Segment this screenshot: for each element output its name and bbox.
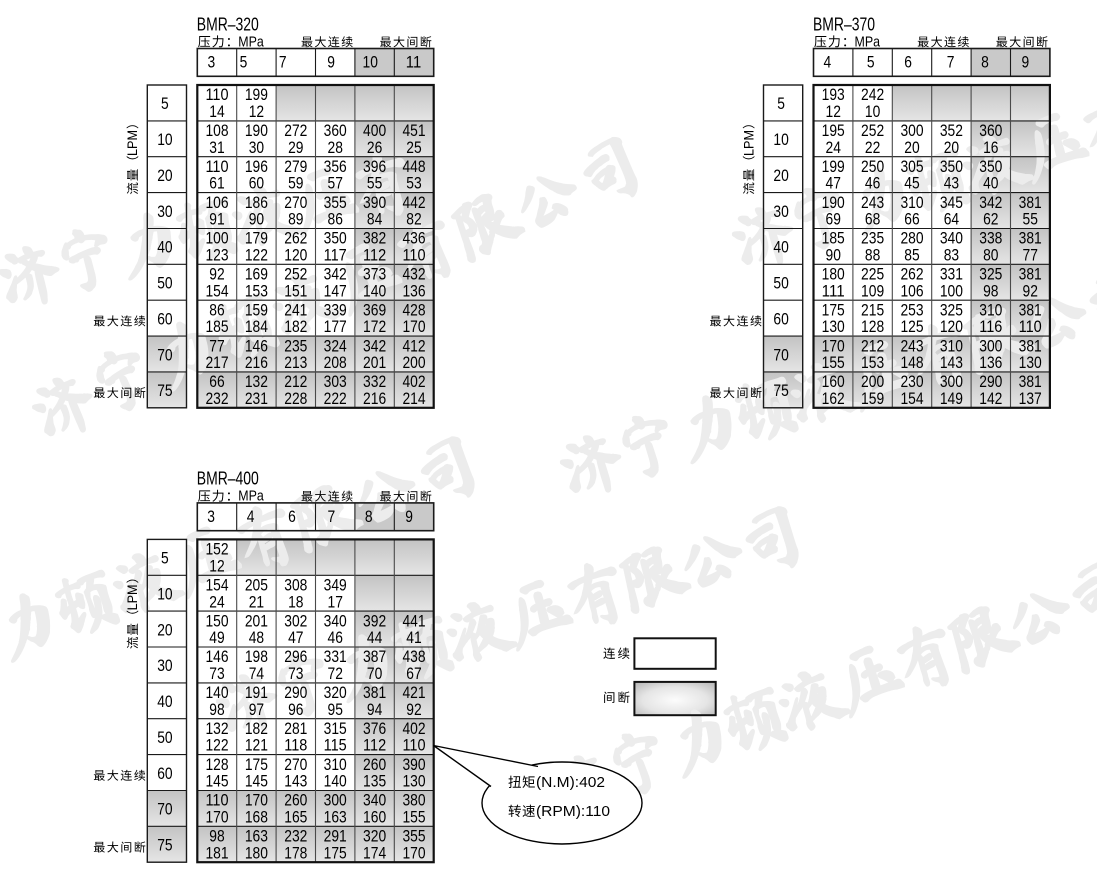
svg-text:150: 150	[205, 612, 228, 630]
svg-text:106: 106	[205, 194, 228, 212]
svg-text:14: 14	[209, 103, 224, 121]
svg-text:448: 448	[402, 158, 425, 176]
svg-text:96: 96	[288, 701, 303, 719]
svg-text:201: 201	[245, 612, 268, 630]
svg-text:381: 381	[1019, 230, 1042, 248]
svg-text:198: 198	[245, 648, 268, 666]
svg-text:143: 143	[940, 354, 963, 372]
svg-text:7: 7	[947, 54, 955, 72]
svg-text:160: 160	[363, 809, 386, 827]
svg-text:199: 199	[822, 158, 845, 176]
svg-text:110: 110	[402, 737, 425, 755]
svg-text:160: 160	[822, 373, 845, 391]
svg-text:146: 146	[205, 648, 228, 666]
svg-text:412: 412	[402, 337, 425, 355]
svg-text:253: 253	[900, 301, 923, 319]
svg-text:331: 331	[940, 266, 963, 284]
svg-text:49: 49	[209, 629, 224, 647]
svg-text:4: 4	[824, 54, 832, 72]
svg-text:200: 200	[402, 354, 425, 372]
svg-text:57: 57	[328, 175, 343, 193]
svg-text:6: 6	[904, 54, 912, 72]
svg-text:12: 12	[249, 103, 264, 121]
svg-text:112: 112	[363, 737, 386, 755]
svg-text:182: 182	[284, 318, 307, 336]
svg-text:20: 20	[773, 167, 788, 185]
svg-text:50: 50	[157, 275, 172, 293]
svg-text:9: 9	[405, 508, 413, 526]
svg-text:24: 24	[209, 593, 224, 611]
svg-text:350: 350	[324, 230, 347, 248]
svg-text:110: 110	[402, 247, 425, 265]
svg-text:163: 163	[245, 828, 268, 846]
svg-text:155: 155	[822, 354, 845, 372]
svg-text:98: 98	[209, 828, 224, 846]
svg-text:LPM: LPM	[741, 130, 756, 156]
svg-text:373: 373	[363, 266, 386, 284]
svg-text:70: 70	[157, 801, 172, 819]
svg-text:396: 396	[363, 158, 386, 176]
svg-text:62: 62	[983, 211, 998, 229]
svg-text:88: 88	[865, 247, 880, 265]
svg-text:186: 186	[245, 194, 268, 212]
svg-text:153: 153	[861, 354, 884, 372]
svg-text:252: 252	[861, 122, 884, 140]
svg-text:40: 40	[773, 239, 788, 257]
svg-text:118: 118	[284, 737, 307, 755]
svg-text:225: 225	[861, 266, 884, 284]
svg-text:3: 3	[207, 508, 215, 526]
svg-text:115: 115	[324, 737, 347, 755]
svg-text:159: 159	[245, 301, 268, 319]
svg-text:185: 185	[822, 230, 845, 248]
svg-text:50: 50	[157, 729, 172, 747]
svg-text:182: 182	[245, 720, 268, 738]
svg-text:149: 149	[940, 390, 963, 408]
svg-text:201: 201	[363, 354, 386, 372]
svg-text:308: 308	[284, 577, 307, 595]
svg-text:60: 60	[157, 765, 172, 783]
svg-text:310: 310	[979, 301, 1002, 319]
svg-text:47: 47	[288, 629, 303, 647]
svg-text:243: 243	[861, 194, 884, 212]
svg-text:12: 12	[826, 103, 841, 121]
svg-text:310: 310	[324, 756, 347, 774]
svg-text:170: 170	[205, 809, 228, 827]
svg-text:381: 381	[363, 684, 386, 702]
svg-text:342: 342	[979, 194, 1002, 212]
svg-text:128: 128	[861, 318, 884, 336]
svg-text:20: 20	[157, 167, 172, 185]
svg-text:5: 5	[161, 550, 169, 568]
svg-text:46: 46	[865, 175, 880, 193]
svg-text:320: 320	[324, 684, 347, 702]
svg-text:80: 80	[983, 247, 998, 265]
svg-text:110: 110	[1019, 318, 1042, 336]
svg-text:94: 94	[367, 701, 382, 719]
svg-text:400: 400	[363, 122, 386, 140]
svg-text:73: 73	[209, 665, 224, 683]
svg-text:53: 53	[406, 175, 421, 193]
svg-text:5: 5	[240, 54, 248, 72]
svg-text:205: 205	[245, 577, 268, 595]
svg-text:179: 179	[245, 230, 268, 248]
svg-text:185: 185	[205, 318, 228, 336]
svg-text:LPM: LPM	[125, 584, 140, 610]
svg-text:48: 48	[249, 629, 264, 647]
svg-text:92: 92	[209, 266, 224, 284]
svg-text:232: 232	[284, 828, 307, 846]
svg-text:428: 428	[402, 301, 425, 319]
svg-text:340: 340	[363, 792, 386, 810]
svg-text:339: 339	[324, 301, 347, 319]
svg-text:110: 110	[205, 792, 228, 810]
svg-text:345: 345	[940, 194, 963, 212]
svg-text:77: 77	[209, 337, 224, 355]
svg-text:44: 44	[367, 629, 382, 647]
svg-text:241: 241	[284, 301, 307, 319]
svg-text:70: 70	[157, 346, 172, 364]
svg-text:300: 300	[900, 122, 923, 140]
svg-text:110: 110	[205, 158, 228, 176]
svg-text:270: 270	[284, 194, 307, 212]
svg-text:382: 382	[363, 230, 386, 248]
svg-text:75: 75	[773, 382, 788, 400]
svg-text:7: 7	[328, 508, 336, 526]
svg-text:174: 174	[363, 844, 386, 862]
svg-text:24: 24	[826, 139, 841, 157]
svg-text:315: 315	[324, 720, 347, 738]
svg-text:55: 55	[1023, 211, 1038, 229]
svg-text:109: 109	[861, 282, 884, 300]
svg-text:252: 252	[284, 266, 307, 284]
svg-text:235: 235	[284, 337, 307, 355]
svg-text:302: 302	[284, 612, 307, 630]
svg-text:178: 178	[284, 844, 307, 862]
svg-text:290: 290	[979, 373, 1002, 391]
svg-text:100: 100	[205, 230, 228, 248]
svg-text:279: 279	[284, 158, 307, 176]
svg-text:140: 140	[205, 684, 228, 702]
svg-text:305: 305	[900, 158, 923, 176]
svg-text:85: 85	[904, 247, 919, 265]
svg-text:9: 9	[1022, 54, 1030, 72]
svg-text:10: 10	[773, 131, 788, 149]
svg-text:154: 154	[900, 390, 923, 408]
svg-text:82: 82	[406, 211, 421, 229]
svg-text:20: 20	[944, 139, 959, 157]
svg-text:162: 162	[822, 390, 845, 408]
svg-text:148: 148	[900, 354, 923, 372]
svg-text:130: 130	[822, 318, 845, 336]
svg-text:175: 175	[822, 301, 845, 319]
svg-text:216: 216	[363, 390, 386, 408]
svg-text:136: 136	[402, 282, 425, 300]
svg-text:7: 7	[279, 54, 287, 72]
svg-text:20: 20	[157, 621, 172, 639]
svg-text:10: 10	[865, 103, 880, 121]
svg-text:9: 9	[327, 54, 335, 72]
svg-text:442: 442	[402, 194, 425, 212]
svg-text:212: 212	[861, 337, 884, 355]
svg-text:165: 165	[284, 809, 307, 827]
svg-text:117: 117	[324, 247, 347, 265]
svg-text:66: 66	[904, 211, 919, 229]
svg-text:92: 92	[406, 701, 421, 719]
svg-text:BMR–370: BMR–370	[813, 13, 875, 34]
svg-text:43: 43	[944, 175, 959, 193]
svg-text:132: 132	[205, 720, 228, 738]
svg-text:310: 310	[940, 337, 963, 355]
svg-text:142: 142	[979, 390, 1002, 408]
svg-text:320: 320	[363, 828, 386, 846]
svg-text:17: 17	[328, 593, 343, 611]
svg-text:213: 213	[284, 354, 307, 372]
svg-text:381: 381	[1019, 194, 1042, 212]
svg-text:40: 40	[157, 693, 172, 711]
svg-text:272: 272	[284, 122, 307, 140]
svg-text:381: 381	[1019, 301, 1042, 319]
svg-text:25: 25	[406, 139, 421, 157]
svg-text:145: 145	[245, 773, 268, 791]
svg-text:147: 147	[324, 282, 347, 300]
svg-text:112: 112	[363, 247, 386, 265]
svg-text:262: 262	[900, 266, 923, 284]
svg-text:381: 381	[1019, 373, 1042, 391]
svg-text:190: 190	[245, 122, 268, 140]
svg-text:300: 300	[324, 792, 347, 810]
svg-text:50: 50	[773, 275, 788, 293]
svg-text:380: 380	[402, 792, 425, 810]
svg-text:18: 18	[288, 593, 303, 611]
svg-text:159: 159	[861, 390, 884, 408]
svg-text:122: 122	[205, 737, 228, 755]
svg-text:190: 190	[822, 194, 845, 212]
svg-text:262: 262	[284, 230, 307, 248]
svg-text:75: 75	[157, 837, 172, 855]
svg-text:215: 215	[861, 301, 884, 319]
svg-text:136: 136	[979, 354, 1002, 372]
svg-text:11: 11	[406, 54, 421, 72]
svg-text:242: 242	[861, 86, 884, 104]
svg-text:59: 59	[288, 175, 303, 193]
svg-text:20: 20	[904, 139, 919, 157]
svg-text:90: 90	[249, 211, 264, 229]
svg-text:70: 70	[367, 665, 382, 683]
svg-text:390: 390	[402, 756, 425, 774]
svg-text:(RPM):110: (RPM):110	[536, 804, 610, 820]
svg-text:260: 260	[363, 756, 386, 774]
svg-text:193: 193	[822, 86, 845, 104]
svg-text:432: 432	[402, 266, 425, 284]
svg-text:10: 10	[157, 586, 172, 604]
svg-text:145: 145	[205, 773, 228, 791]
svg-text:231: 231	[245, 390, 268, 408]
svg-text:355: 355	[402, 828, 425, 846]
svg-text:291: 291	[324, 828, 347, 846]
svg-text:340: 340	[324, 612, 347, 630]
svg-text:130: 130	[402, 773, 425, 791]
svg-text:BMR–400: BMR–400	[197, 468, 259, 489]
svg-text:280: 280	[900, 230, 923, 248]
svg-text:30: 30	[157, 657, 172, 675]
svg-text:95: 95	[328, 701, 343, 719]
svg-text:325: 325	[940, 301, 963, 319]
svg-text:151: 151	[284, 282, 307, 300]
svg-text:75: 75	[157, 382, 172, 400]
svg-text:352: 352	[940, 122, 963, 140]
svg-text:45: 45	[904, 175, 919, 193]
svg-text:16: 16	[983, 139, 998, 157]
svg-text:30: 30	[773, 203, 788, 221]
svg-text:8: 8	[365, 508, 373, 526]
svg-text:168: 168	[245, 809, 268, 827]
svg-text:89: 89	[288, 211, 303, 229]
svg-text:60: 60	[249, 175, 264, 193]
svg-text:200: 200	[861, 373, 884, 391]
svg-text:8: 8	[981, 54, 989, 72]
svg-text:12: 12	[209, 557, 224, 575]
svg-text:66: 66	[209, 373, 224, 391]
svg-text:184: 184	[245, 318, 268, 336]
svg-text:342: 342	[363, 337, 386, 355]
svg-text:170: 170	[402, 318, 425, 336]
svg-text:60: 60	[773, 310, 788, 328]
svg-text:177: 177	[324, 318, 347, 336]
svg-text:31: 31	[209, 139, 224, 157]
svg-text:72: 72	[328, 665, 343, 683]
svg-text:180: 180	[245, 844, 268, 862]
svg-text:232: 232	[205, 390, 228, 408]
svg-text:40: 40	[983, 175, 998, 193]
svg-text:441: 441	[402, 612, 425, 630]
svg-text:128: 128	[205, 756, 228, 774]
svg-text:350: 350	[940, 158, 963, 176]
svg-text:67: 67	[406, 665, 421, 683]
svg-text:120: 120	[940, 318, 963, 336]
svg-text:281: 281	[284, 720, 307, 738]
svg-text:324: 324	[324, 337, 347, 355]
svg-text:28: 28	[328, 139, 343, 157]
svg-text:106: 106	[900, 282, 923, 300]
svg-text:402: 402	[402, 373, 425, 391]
svg-text:100: 100	[940, 282, 963, 300]
svg-text:46: 46	[328, 629, 343, 647]
svg-text:180: 180	[822, 266, 845, 284]
svg-text:40: 40	[157, 239, 172, 257]
svg-text:132: 132	[245, 373, 268, 391]
svg-text:235: 235	[861, 230, 884, 248]
svg-text:140: 140	[363, 282, 386, 300]
svg-text:123: 123	[205, 247, 228, 265]
svg-text:111: 111	[822, 282, 845, 300]
svg-text:196: 196	[245, 158, 268, 176]
svg-text:270: 270	[284, 756, 307, 774]
svg-text:26: 26	[367, 139, 382, 157]
svg-text:155: 155	[402, 809, 425, 827]
svg-text:LPM: LPM	[125, 130, 140, 156]
svg-text:195: 195	[822, 122, 845, 140]
svg-text:381: 381	[1019, 266, 1042, 284]
svg-text:175: 175	[245, 756, 268, 774]
svg-text:BMR–320: BMR–320	[197, 13, 259, 34]
svg-text:5: 5	[777, 95, 785, 113]
svg-text:30: 30	[249, 139, 264, 157]
svg-text:90: 90	[826, 247, 841, 265]
svg-text:60: 60	[157, 310, 172, 328]
svg-text:97: 97	[249, 701, 264, 719]
svg-text:3: 3	[208, 54, 216, 72]
svg-text:163: 163	[324, 809, 347, 827]
svg-text:303: 303	[324, 373, 347, 391]
svg-text:86: 86	[209, 301, 224, 319]
svg-text:(N.M):402: (N.M):402	[536, 775, 605, 791]
svg-text:5: 5	[161, 95, 169, 113]
svg-text:30: 30	[157, 203, 172, 221]
svg-text:22: 22	[865, 139, 880, 157]
svg-text:369: 369	[363, 301, 386, 319]
svg-text:212: 212	[284, 373, 307, 391]
svg-text:169: 169	[245, 266, 268, 284]
svg-text:360: 360	[979, 122, 1002, 140]
svg-text:340: 340	[940, 230, 963, 248]
svg-text:199: 199	[245, 86, 268, 104]
svg-text:181: 181	[205, 844, 228, 862]
svg-text:130: 130	[1019, 354, 1042, 372]
svg-text:154: 154	[205, 282, 228, 300]
svg-text:222: 222	[324, 390, 347, 408]
svg-text:73: 73	[288, 665, 303, 683]
svg-text:152: 152	[205, 541, 228, 559]
svg-text:137: 137	[1019, 390, 1042, 408]
svg-text:92: 92	[1023, 282, 1038, 300]
svg-text:21: 21	[249, 593, 264, 611]
svg-text:243: 243	[900, 337, 923, 355]
svg-text:338: 338	[979, 230, 1002, 248]
svg-text:331: 331	[324, 648, 347, 666]
svg-text:5: 5	[867, 54, 875, 72]
svg-text:170: 170	[402, 844, 425, 862]
svg-text:108: 108	[205, 122, 228, 140]
svg-text:349: 349	[324, 577, 347, 595]
svg-text:98: 98	[209, 701, 224, 719]
svg-text:260: 260	[284, 792, 307, 810]
svg-text:135: 135	[363, 773, 386, 791]
svg-text:216: 216	[245, 354, 268, 372]
svg-text:381: 381	[1019, 337, 1042, 355]
svg-text:146: 146	[245, 337, 268, 355]
svg-text:6: 6	[288, 508, 296, 526]
svg-text:55: 55	[367, 175, 382, 193]
svg-text:217: 217	[205, 354, 228, 372]
svg-text:387: 387	[363, 648, 386, 666]
svg-text:110: 110	[205, 86, 228, 104]
svg-text:69: 69	[826, 211, 841, 229]
svg-text:83: 83	[944, 247, 959, 265]
svg-text:47: 47	[826, 175, 841, 193]
svg-text:296: 296	[284, 648, 307, 666]
svg-text:116: 116	[979, 318, 1002, 336]
svg-text:29: 29	[288, 139, 303, 157]
svg-text:121: 121	[245, 737, 268, 755]
svg-text:170: 170	[822, 337, 845, 355]
svg-text:125: 125	[900, 318, 923, 336]
svg-text:214: 214	[402, 390, 425, 408]
svg-text:191: 191	[245, 684, 268, 702]
svg-text:392: 392	[363, 612, 386, 630]
svg-text:421: 421	[402, 684, 425, 702]
svg-text:140: 140	[324, 773, 347, 791]
